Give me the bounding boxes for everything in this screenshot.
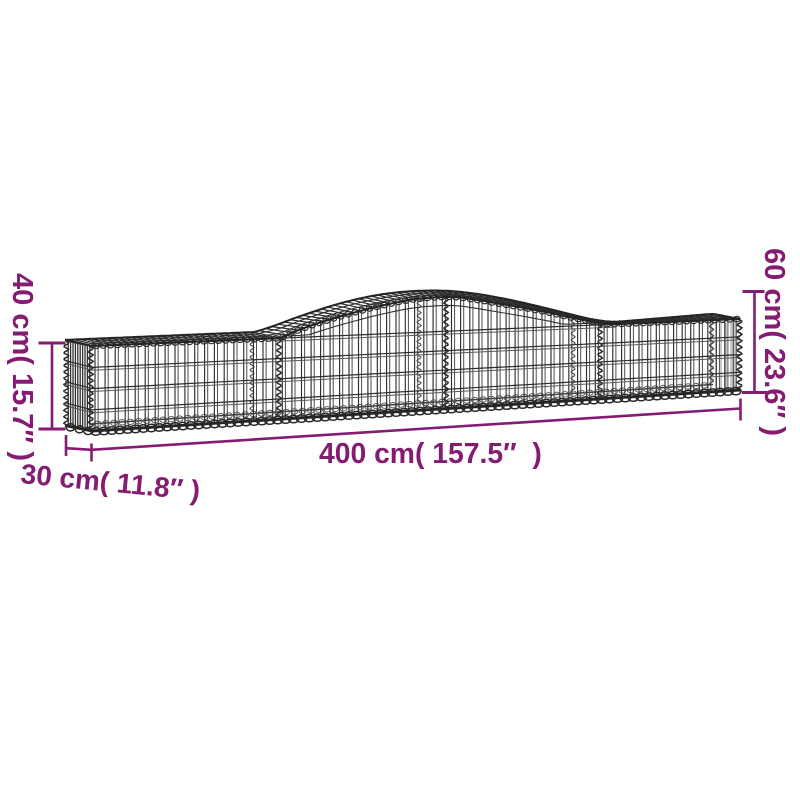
svg-text:40 cm( 15.7″ ): 40 cm( 15.7″ ) [6,273,38,461]
svg-text:60 cm( 23.6″ ): 60 cm( 23.6″ ) [758,248,790,436]
svg-text:400 cm( 157.5″ ): 400 cm( 157.5″ ) [319,437,542,469]
svg-text:30 cm( 11.8″ ): 30 cm( 11.8″ ) [19,458,201,506]
